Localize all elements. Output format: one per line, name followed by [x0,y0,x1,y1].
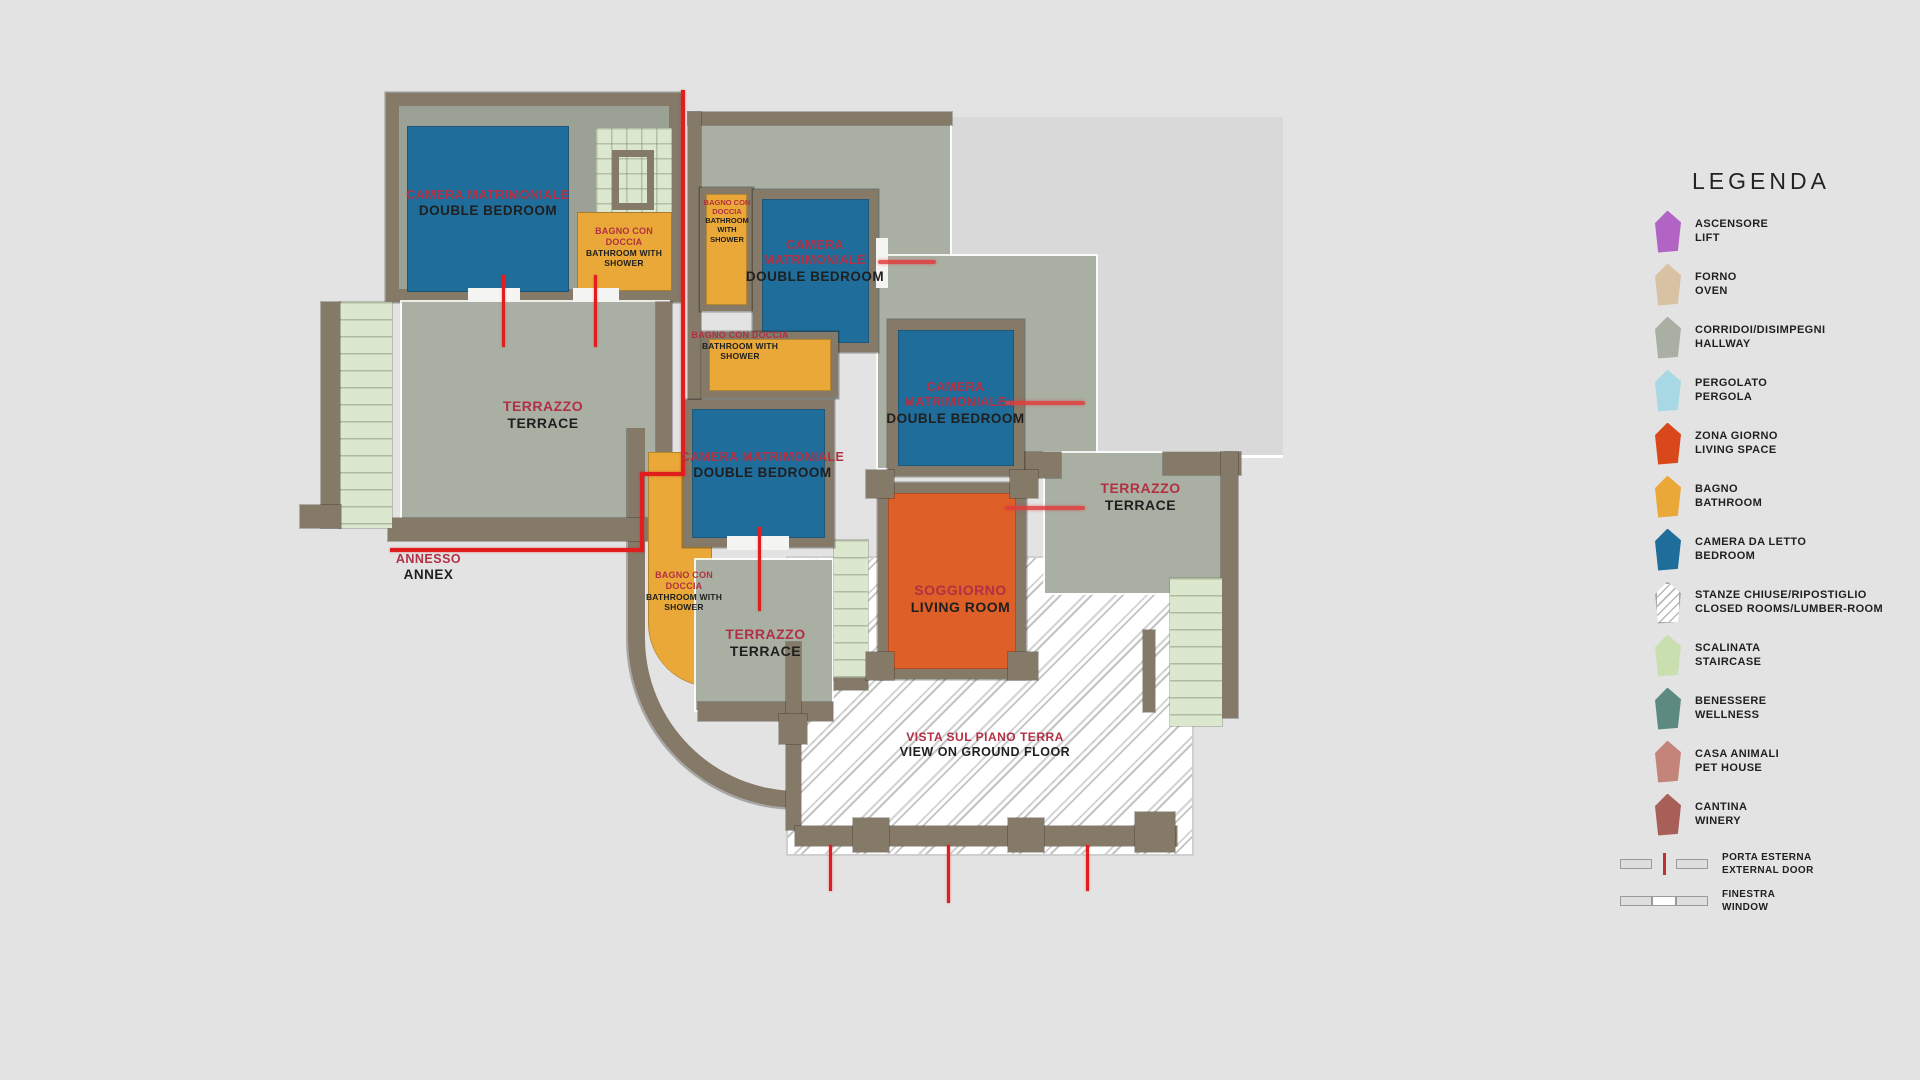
legend-it: BAGNO [1695,483,1762,497]
middle-staircase-wall [834,678,868,690]
right-staircase [1170,578,1222,726]
label-it: CAMERA MATRIMONIALE [680,450,845,465]
legend-it: FORNO [1695,271,1737,285]
bottom-door-marker-3 [1086,845,1089,891]
legend-row-staircase: SCALINATASTAIRCASE [1655,629,1920,682]
terrace-right-side-wall [1221,452,1238,718]
bedroom-middle-door-marker [758,527,761,611]
label-en: ANNEX [356,567,501,583]
label-it: BAGNO CON DOCCIA [700,198,754,216]
hallway-swatch-icon [1655,317,1681,359]
annex-staircase-wall [612,150,654,210]
label-it: CAMERA MATRIMONIALE [740,238,890,269]
label-bedroom-right: CAMERA MATRIMONIALE DOUBLE BEDROOM [878,380,1033,427]
legend-row-winery: CANTINAWINERY [1655,788,1920,841]
annex-door-marker-right [594,275,597,347]
wall-bar [1620,896,1652,906]
door-red-line [1663,853,1666,875]
bottom-door-marker-2 [947,845,950,903]
annex-boundary-line-vertical [681,90,685,476]
lift-swatch-icon [1655,211,1681,253]
pergola-swatch-icon [1655,370,1681,412]
door-mid [1652,854,1676,874]
hatch-bottom-pillar-1 [853,818,889,852]
label-it: CAMERA MATRIMONIALE [878,380,1033,411]
pet-house-swatch-icon [1655,741,1681,783]
label-en: DOUBLE BEDROOM [398,203,578,219]
label-bathroom-top: BAGNO CON DOCCIA BATHROOM WITH SHOWER [700,198,754,244]
label-en: BATHROOM WITH SHOWER [690,341,790,362]
living-space-swatch-icon [1655,423,1681,465]
label-it: BAGNO CON DOCCIA [638,570,730,592]
legend-row-external-door: PORTA ESTERNAEXTERNAL DOOR [1620,850,1920,878]
annex-boundary-line-vertical-2 [640,472,644,552]
label-terrace-right: TERRAZZO TERRACE [1063,480,1218,514]
label-en: TERRACE [693,643,838,660]
legend-it: BENESSERE [1695,695,1766,709]
bathroom-swatch-icon [1655,476,1681,518]
legend-en: LIFT [1695,232,1768,246]
legend-it: CANTINA [1695,801,1747,815]
label-it: VISTA SUL PIANO TERRA [880,730,1090,745]
bottom-door-marker-1 [829,845,832,891]
label-annex-bedroom: CAMERA MATRIMONIALE DOUBLE BEDROOM [398,188,578,220]
legend-it: CAMERA DA LETTO [1695,536,1806,550]
legend-en: PET HOUSE [1695,762,1779,776]
window-mid [1652,891,1676,911]
winery-swatch-icon [1655,794,1681,836]
legend-row-pet-house: CASA ANIMALIPET HOUSE [1655,735,1920,788]
window-symbol-icon [1620,891,1708,911]
label-en: VIEW ON GROUND FLOOR [880,745,1090,760]
label-it: TERRAZZO [1063,480,1218,497]
label-it: ANNESSO [356,552,501,567]
legend-it: SCALINATA [1695,642,1761,656]
legend-en: OVEN [1695,285,1737,299]
legend-it: ZONA GIORNO [1695,430,1778,444]
bedroom-swatch-icon [1655,529,1681,571]
legend-en: WELLNESS [1695,709,1766,723]
annex-left-staircase-wall [321,302,340,528]
living-pillar-top-right [1010,470,1038,498]
legend: LEGENDA ASCENSORELIFT FORNOOVEN CORRIDOI… [1655,168,1920,915]
legend-en: CLOSED ROOMS/LUMBER-ROOM [1695,603,1883,617]
label-bedroom-top: CAMERA MATRIMONIALE DOUBLE BEDROOM [740,238,890,285]
label-bathroom-middle: BAGNO CON DOCCIA BATHROOM WITH SHOWER [690,330,790,362]
legend-en: LIVING SPACE [1695,444,1778,458]
legend-en: HALLWAY [1695,338,1825,352]
legend-it: STANZE CHIUSE/RIPOSTIGLIO [1695,589,1883,603]
legend-en: WINERY [1695,815,1747,829]
label-bathroom-curved: BAGNO CON DOCCIA BATHROOM WITH SHOWER [638,570,730,613]
legend-it: ASCENSORE [1695,218,1768,232]
hatch-bottom-pillar-3 [1135,812,1175,852]
legend-row-oven: FORNOOVEN [1655,258,1920,311]
external-door-symbol-icon [1620,854,1708,874]
legend-en: BATHROOM [1695,497,1762,511]
legend-it: FINESTRA [1722,888,1775,901]
living-pillar-bottom-right [1008,652,1038,680]
wall-bar [1620,859,1652,869]
legend-en: STAIRCASE [1695,656,1761,670]
middle-staircase [834,540,868,680]
legend-row-pergola: PERGOLATOPERGOLA [1655,364,1920,417]
legend-it: PORTA ESTERNA [1722,851,1814,864]
legend-row-bathroom: BAGNOBATHROOM [1655,470,1920,523]
label-it: BAGNO CON DOCCIA [690,330,790,341]
legend-items: ASCENSORELIFT FORNOOVEN CORRIDOI/DISIMPE… [1655,205,1920,841]
label-it: SOGGIORNO [878,582,1043,599]
annex-terrace-bottom-wall [388,518,670,541]
living-pillar-bottom-left [866,652,894,680]
label-en: TERRACE [1063,497,1218,514]
legend-en: WINDOW [1722,901,1775,914]
legend-it: CORRIDOI/DISIMPEGNI [1695,324,1825,338]
legend-row-hallway: CORRIDOI/DISIMPEGNIHALLWAY [1655,311,1920,364]
legend-en: BEDROOM [1695,550,1806,564]
window-pane [1652,896,1676,906]
label-en: BATHROOM WITH SHOWER [576,248,672,269]
label-en: BATHROOM WITH SHOWER [638,592,730,613]
staircase-swatch-icon [1655,635,1681,677]
main-top-wall [688,112,952,125]
wellness-swatch-icon [1655,688,1681,730]
legend-en: PERGOLA [1695,391,1767,405]
floor-plan-stage: CAMERA MATRIMONIALE DOUBLE BEDROOM BAGNO… [0,0,1920,1080]
legend-row-living-space: ZONA GIORNOLIVING SPACE [1655,417,1920,470]
annex-left-staircase [340,302,392,528]
label-en: DOUBLE BEDROOM [680,465,845,481]
hatch-right-wall [1143,630,1155,712]
legend-row-wellness: BENESSEREWELLNESS [1655,682,1920,735]
label-annex-bathroom: BAGNO CON DOCCIA BATHROOM WITH SHOWER [576,226,672,269]
living-pillar-top-left [866,470,894,498]
wall-bar [1676,896,1708,906]
legend-title: LEGENDA [1692,168,1920,195]
label-terrace-middle: TERRAZZO TERRACE [693,626,838,660]
annex-boundary-line-step [640,472,685,476]
legend-row-window: FINESTRAWINDOW [1620,887,1920,915]
label-vista: VISTA SUL PIANO TERRA VIEW ON GROUND FLO… [880,730,1090,760]
annex-staircase-foot-wall [300,505,341,528]
label-it: TERRAZZO [693,626,838,643]
label-en: TERRACE [463,415,623,432]
legend-it: PERGOLATO [1695,377,1767,391]
label-living-room: SOGGIORNO LIVING ROOM [878,582,1043,616]
annex-door-gap-left [468,288,520,302]
label-annex-terrace: TERRAZZO TERRACE [463,398,623,432]
label-it: BAGNO CON DOCCIA [576,226,672,248]
label-it: CAMERA MATRIMONIALE [398,188,578,203]
terrace-middle-bottom-wall [698,702,833,721]
wall-bar [1676,859,1708,869]
closed-rooms-swatch-icon [1655,582,1681,624]
hatch-left-pillar [779,714,807,744]
hatch-bottom-pillar-2 [1008,818,1044,852]
annex-door-marker-left [502,275,505,347]
legend-it: CASA ANIMALI [1695,748,1779,762]
living-room [878,483,1026,679]
label-en: DOUBLE BEDROOM [878,411,1033,427]
oven-swatch-icon [1655,264,1681,306]
label-en: LIVING ROOM [878,599,1043,616]
label-en: DOUBLE BEDROOM [740,269,890,285]
legend-row-bedroom: CAMERA DA LETTOBEDROOM [1655,523,1920,576]
label-bedroom-middle: CAMERA MATRIMONIALE DOUBLE BEDROOM [680,450,845,482]
legend-en: EXTERNAL DOOR [1722,864,1814,877]
label-annex: ANNESSO ANNEX [356,552,501,584]
legend-row-closed-rooms: STANZE CHIUSE/RIPOSTIGLIOCLOSED ROOMS/LU… [1655,576,1920,629]
label-it: TERRAZZO [463,398,623,415]
legend-row-lift: ASCENSORELIFT [1655,205,1920,258]
